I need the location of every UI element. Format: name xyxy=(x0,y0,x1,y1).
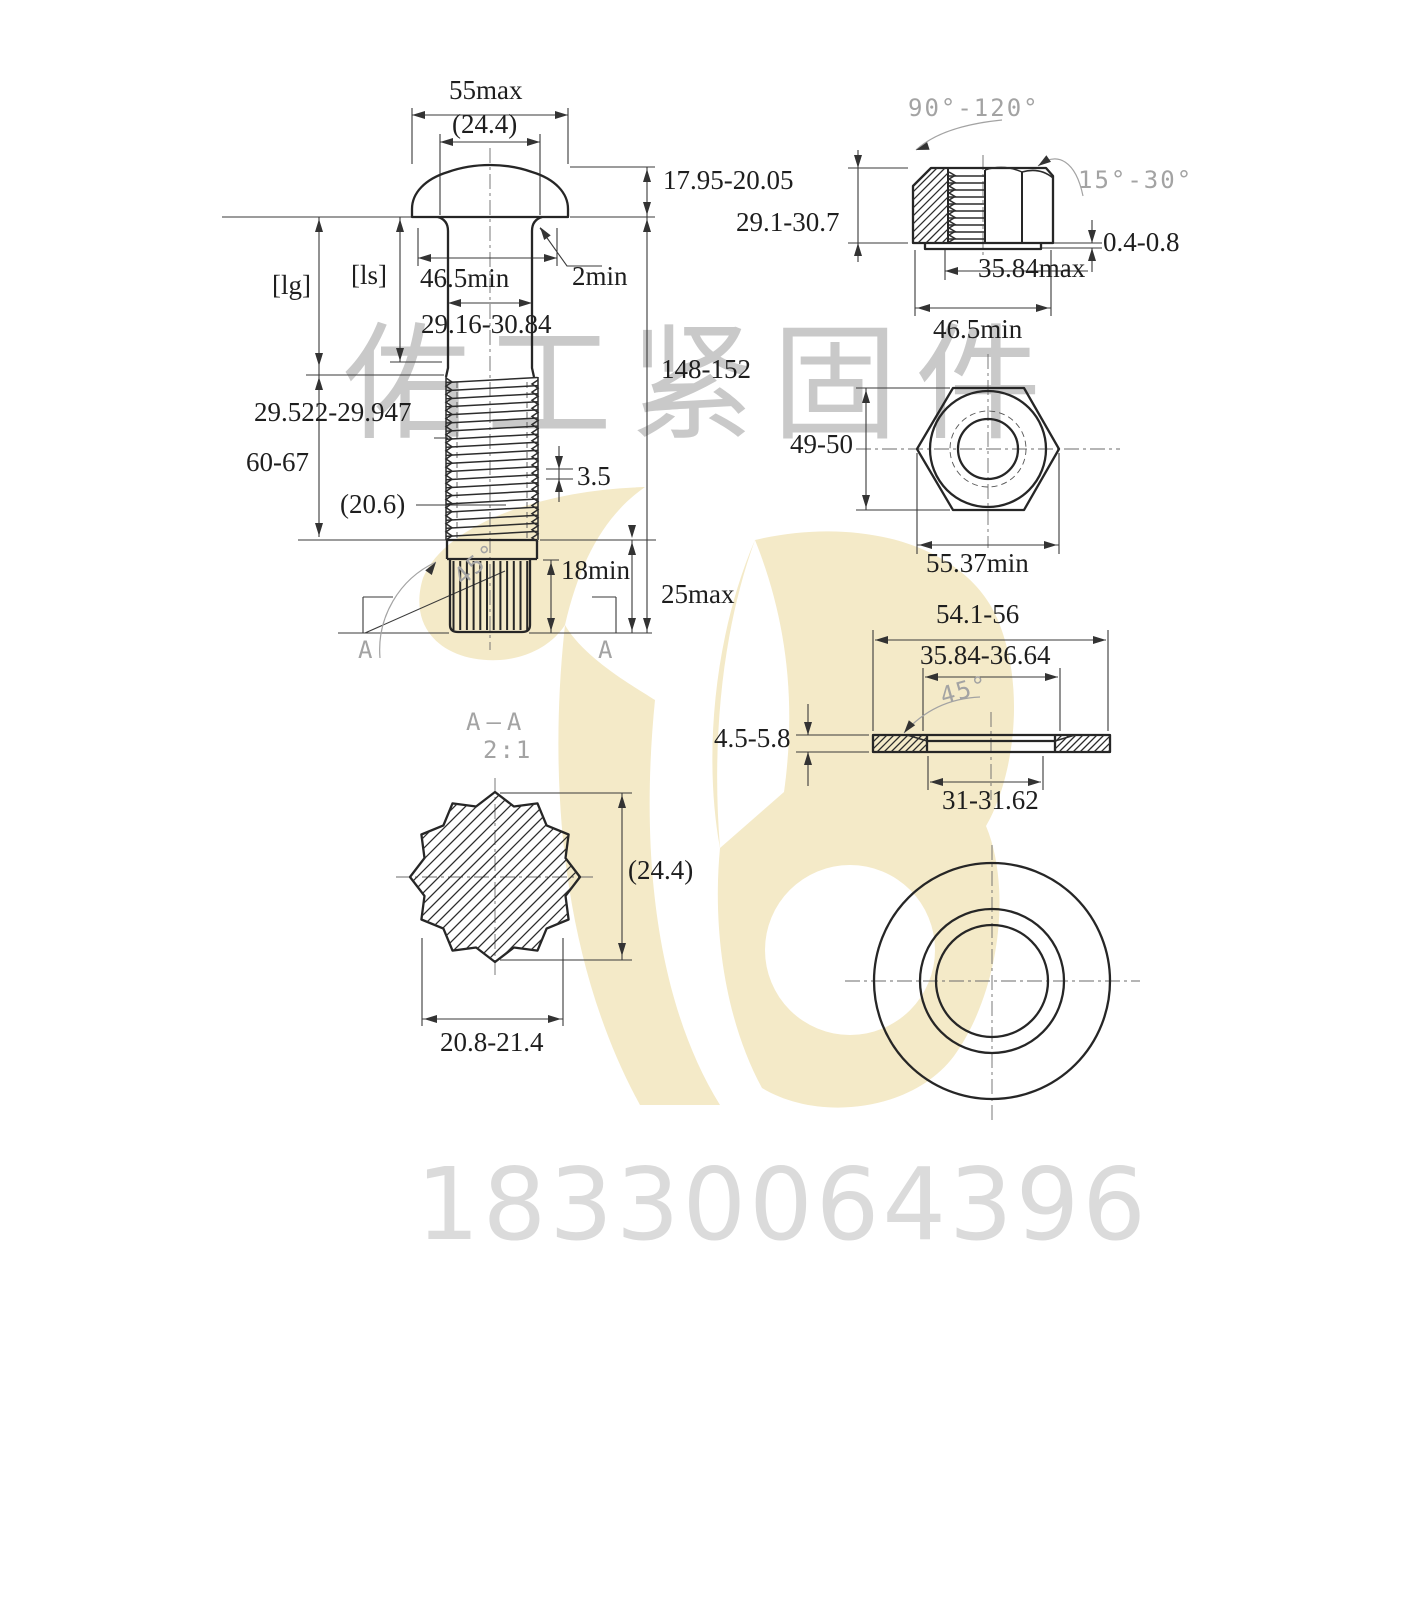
dim-nut-thread-chamfer: 15°-30° xyxy=(1078,168,1193,193)
dim-head-ref-dia: (24.4) xyxy=(452,110,517,138)
drawing-linework xyxy=(0,0,1416,1600)
dim-thread-ref: (20.6) xyxy=(340,490,405,518)
dim-nut-bearing-dia: 46.5min xyxy=(933,315,1022,343)
section-scale: 2:1 xyxy=(483,738,532,763)
dim-washer-thickness: 4.5-5.8 xyxy=(714,724,791,752)
dim-overall-length: 148-152 xyxy=(661,355,751,383)
dim-washer-od: 54.1-56 xyxy=(936,600,1019,628)
dim-section-spline-dia: 20.8-21.4 xyxy=(440,1028,544,1056)
dim-nut-across-corners: 55.37min xyxy=(926,549,1029,577)
dim-spline-length: 18min xyxy=(561,556,630,584)
dim-nut-washer-face: 0.4-0.8 xyxy=(1103,228,1180,256)
engineering-drawing-canvas: 佑工紧固件 18330064396 xyxy=(0,0,1416,1600)
dim-bearing-dia: 46.5min xyxy=(420,264,509,292)
dim-head-width: 55max xyxy=(449,76,523,104)
centerlines xyxy=(396,148,1140,1120)
dim-nut-across-flats: 49-50 xyxy=(790,430,853,458)
dim-nut-thread-dia: 35.84max xyxy=(978,254,1085,282)
dim-section-od-ref: (24.4) xyxy=(628,856,693,884)
section-mark-left: A xyxy=(358,638,374,663)
dim-nut-height: 29.1-30.7 xyxy=(736,208,840,236)
dim-shank-dia: 29.16-30.84 xyxy=(421,310,552,338)
dim-end-length: 25max xyxy=(661,580,735,608)
dim-nut-countersink-angle: 90°-120° xyxy=(908,96,1040,121)
dim-washer-id: 31-31.62 xyxy=(942,786,1039,814)
dim-thread-pitch: 3.5 xyxy=(577,462,611,490)
section-mark-right: A xyxy=(598,638,614,663)
dim-head-height: 17.95-20.05 xyxy=(663,166,794,194)
dim-shank-ref: [ls] xyxy=(351,261,387,289)
dim-washer-recess: 35.84-36.64 xyxy=(920,641,1051,669)
dim-thread-length: 60-67 xyxy=(246,448,309,476)
section-title: A—A xyxy=(466,710,527,735)
dim-grip-ref: [lg] xyxy=(272,271,311,299)
dim-thread-major: 29.522-29.947 xyxy=(254,398,412,426)
dim-fillet: 2min xyxy=(572,262,628,290)
